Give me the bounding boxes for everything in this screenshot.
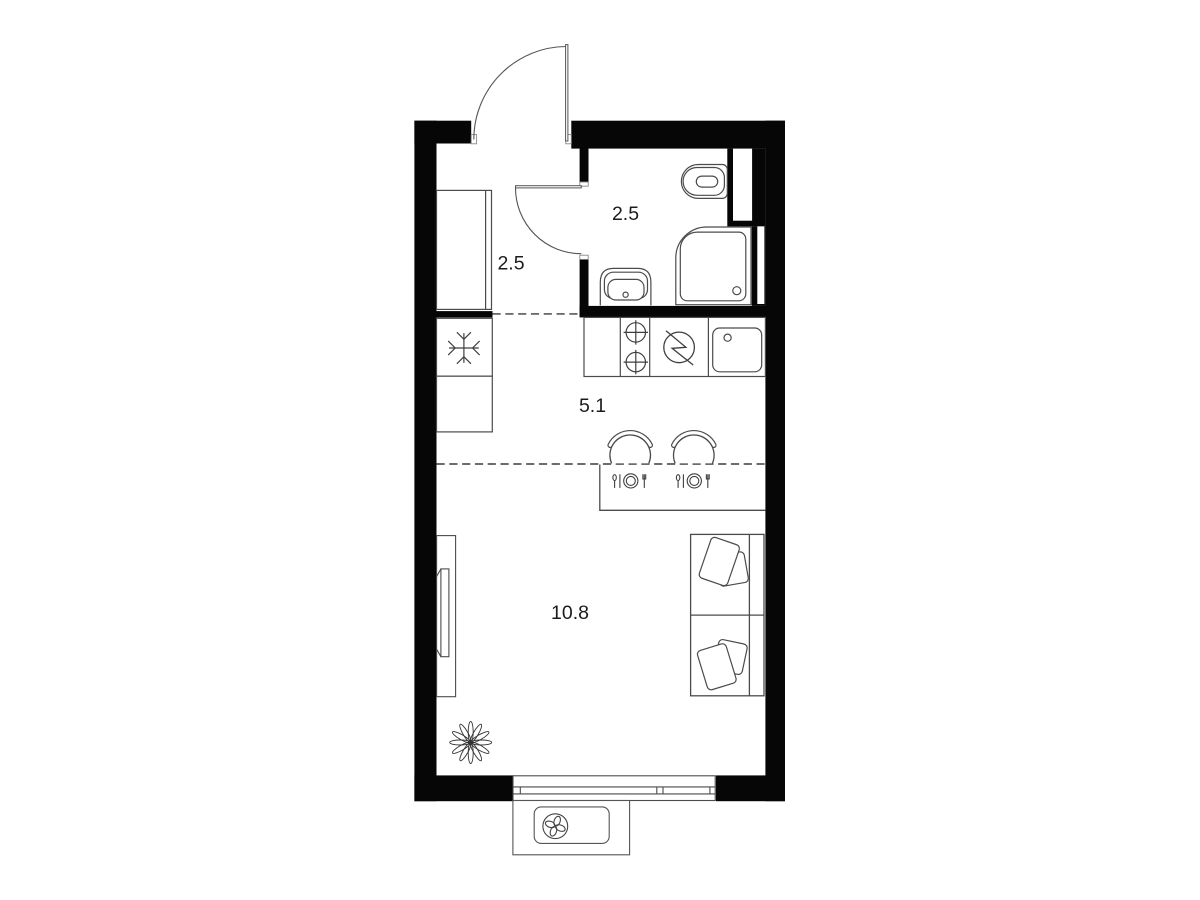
svg-text:2.5: 2.5 <box>612 203 639 225</box>
svg-text:10.8: 10.8 <box>551 602 589 624</box>
svg-text:2.5: 2.5 <box>497 253 524 275</box>
svg-text:5.1: 5.1 <box>579 395 606 417</box>
